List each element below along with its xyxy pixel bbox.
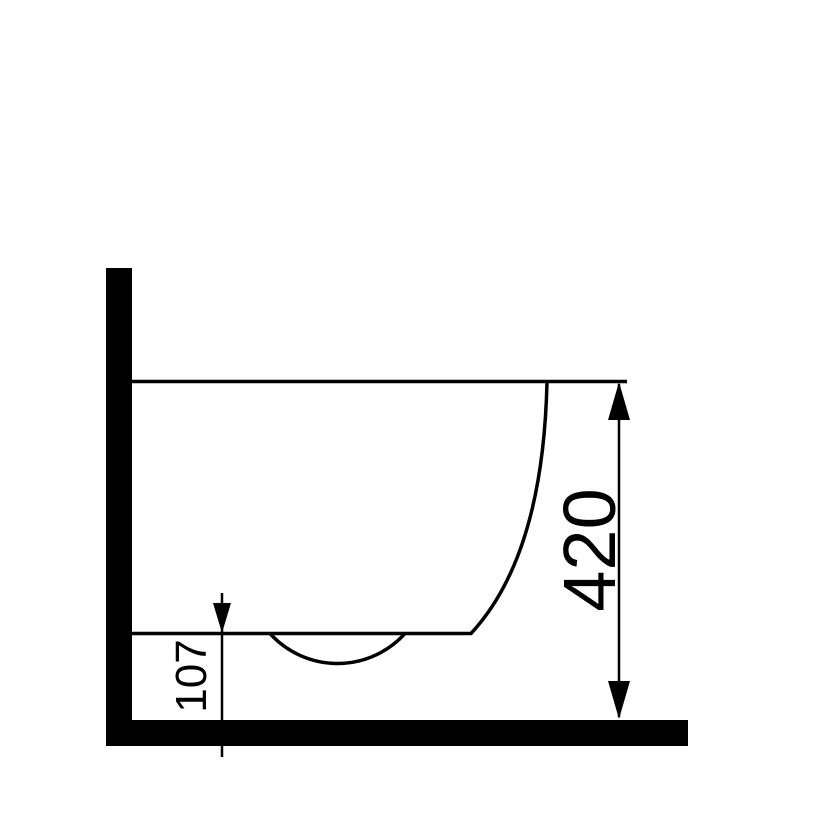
fixture-trap-arc [270,634,405,664]
floor-section-bar [106,720,688,746]
arrow-down-icon [213,603,231,633]
wall-section-bar [106,268,132,746]
dimension-drawing: 420 107 [0,0,827,827]
arrow-up-icon [608,382,630,420]
technical-drawing-canvas: 420 107 [0,0,827,827]
fixture-profile-outline [132,382,547,634]
dimension-label-107: 107 [167,639,216,712]
dimension-label-420: 420 [548,488,631,611]
arrow-down-icon [608,681,630,719]
